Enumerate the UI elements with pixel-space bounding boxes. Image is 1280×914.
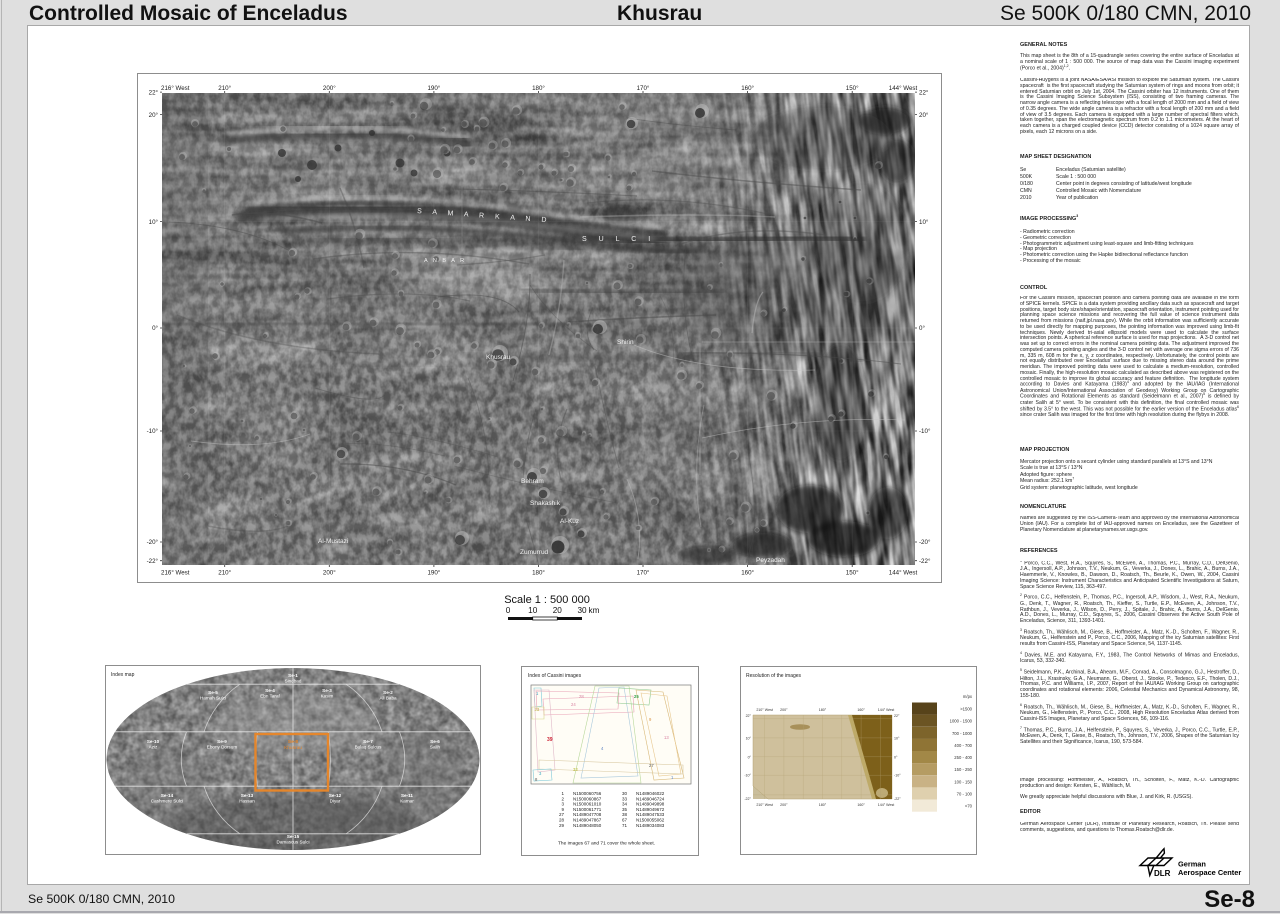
svg-text:Se-4: Se-4: [265, 688, 275, 693]
svg-text:39: 39: [547, 737, 553, 743]
svg-text:13: 13: [664, 735, 669, 740]
svg-text:200°: 200°: [323, 85, 336, 92]
svg-text:160°: 160°: [857, 803, 865, 807]
svg-text:100 - 150: 100 - 150: [954, 779, 972, 784]
svg-text:190°: 190°: [427, 570, 440, 577]
svg-text:Aziz: Aziz: [149, 745, 158, 750]
svg-text:Se-13: Se-13: [241, 793, 254, 798]
svg-text:-22°: -22°: [147, 558, 159, 565]
svg-text:33: 33: [573, 767, 578, 772]
svg-text:38: 38: [622, 812, 628, 817]
svg-text:The images 67 and 71 cover the: The images 67 and 71 cover the whole she…: [558, 841, 655, 847]
svg-text:Salih: Salih: [430, 745, 441, 750]
svg-text:30: 30: [577, 606, 587, 615]
svg-text:Se-2: Se-2: [383, 690, 393, 695]
svg-text:0°: 0°: [748, 755, 752, 759]
svg-text:DLR: DLR: [1154, 869, 1171, 878]
svg-text:180°: 180°: [819, 803, 827, 807]
svg-text:150 - 250: 150 - 250: [954, 767, 972, 772]
svg-text:N1489046724: N1489046724: [636, 796, 665, 801]
svg-text:216° West: 216° West: [161, 570, 190, 577]
svg-text:Se-12: Se-12: [329, 793, 342, 798]
svg-text:200°: 200°: [780, 708, 788, 712]
svg-text:180°: 180°: [532, 85, 545, 92]
svg-text:Cashmere Sulci: Cashmere Sulci: [151, 799, 183, 804]
svg-text:N1489047867: N1489047867: [573, 818, 602, 823]
svg-text:Aerospace Center: Aerospace Center: [1178, 868, 1241, 877]
svg-text:250 - 400: 250 - 400: [954, 755, 972, 760]
svg-text:23: 23: [535, 707, 540, 712]
svg-text:-10°: -10°: [744, 774, 751, 778]
svg-text:10: 10: [528, 606, 538, 615]
svg-text:0°: 0°: [919, 325, 925, 332]
svg-text:210°: 210°: [218, 85, 231, 92]
svg-text:33: 33: [622, 796, 628, 801]
svg-text:0°: 0°: [894, 755, 898, 759]
svg-text:29: 29: [559, 823, 565, 828]
svg-text:27: 27: [559, 812, 565, 817]
svg-text:30: 30: [622, 791, 628, 796]
svg-text:0°: 0°: [152, 325, 158, 332]
svg-text:150°: 150°: [846, 570, 859, 577]
svg-text:10°: 10°: [746, 736, 752, 740]
svg-text:Index map: Index map: [111, 672, 135, 678]
svg-text:160°: 160°: [741, 570, 754, 577]
svg-text:<70: <70: [965, 804, 973, 809]
svg-text:-22°: -22°: [744, 797, 751, 801]
svg-text:20°: 20°: [149, 112, 159, 119]
svg-text:35: 35: [622, 807, 628, 812]
svg-text:-10°: -10°: [894, 774, 901, 778]
svg-text:-20°: -20°: [919, 539, 931, 546]
svg-text:210° West: 210° West: [756, 708, 773, 712]
svg-text:Ali Baba: Ali Baba: [379, 696, 397, 701]
svg-text:Ebony Dorsum: Ebony Dorsum: [207, 745, 238, 750]
svg-text:144° West: 144° West: [889, 85, 918, 92]
svg-text:N1489047708: N1489047708: [573, 812, 602, 817]
svg-text:N1489047533: N1489047533: [636, 812, 665, 817]
svg-text:N1489048050: N1489048050: [573, 823, 602, 828]
svg-text:22°: 22°: [919, 90, 929, 97]
svg-text:Damascus Sulci: Damascus Sulci: [277, 840, 310, 845]
svg-text:10°: 10°: [149, 219, 159, 226]
svg-text:Se-8: Se-8: [288, 739, 298, 745]
svg-text:20: 20: [553, 606, 563, 615]
svg-text:180°: 180°: [532, 570, 545, 577]
svg-text:Resolution of the images: Resolution of the images: [746, 673, 802, 679]
svg-text:N1500061010: N1500061010: [573, 802, 602, 807]
svg-text:67: 67: [622, 818, 628, 823]
svg-text:Sindbad: Sindbad: [285, 679, 302, 684]
svg-text:700 - 1000: 700 - 1000: [952, 731, 973, 736]
svg-text:150°: 150°: [846, 85, 859, 92]
svg-text:Se-10: Se-10: [147, 739, 160, 744]
svg-text:Bulaq Sulcus: Bulaq Sulcus: [355, 745, 383, 750]
svg-text:28: 28: [579, 694, 584, 699]
svg-text:N1489049898: N1489049898: [636, 802, 665, 807]
svg-text:Se-14: Se-14: [161, 793, 174, 798]
svg-text:10°: 10°: [894, 736, 900, 740]
svg-text:-22°: -22°: [894, 797, 901, 801]
svg-text:200°: 200°: [780, 803, 788, 807]
svg-text:0: 0: [506, 606, 511, 615]
svg-text:m/px: m/px: [963, 694, 973, 699]
svg-text:-10°: -10°: [919, 428, 931, 435]
svg-text:N1489046022: N1489046022: [636, 791, 665, 796]
svg-text:Se-9: Se-9: [217, 739, 227, 744]
svg-text:Kamar: Kamar: [400, 799, 414, 804]
svg-text:N1489049672: N1489049672: [636, 807, 665, 812]
svg-text:1000 - 1500: 1000 - 1500: [950, 719, 973, 724]
svg-text:144° West: 144° West: [889, 570, 918, 577]
svg-text:20°: 20°: [919, 112, 929, 119]
svg-text:-20°: -20°: [147, 539, 159, 546]
svg-text:170°: 170°: [637, 85, 650, 92]
svg-text:-10°: -10°: [147, 428, 159, 435]
svg-text:km: km: [589, 606, 600, 615]
svg-text:70 - 100: 70 - 100: [957, 791, 973, 796]
svg-text:400 - 700: 400 - 700: [954, 743, 972, 748]
svg-text:Index of Cassini images: Index of Cassini images: [528, 673, 582, 679]
svg-text:180°: 180°: [819, 708, 827, 712]
svg-text:210°: 210°: [218, 570, 231, 577]
svg-text:Ebn Taraf: Ebn Taraf: [260, 694, 280, 699]
svg-text:Se-3: Se-3: [322, 688, 332, 693]
svg-text:Se-1: Se-1: [288, 673, 298, 678]
svg-text:10°: 10°: [919, 219, 929, 226]
svg-text:24: 24: [571, 702, 576, 707]
svg-text:34: 34: [622, 802, 628, 807]
svg-text:144° West: 144° West: [878, 803, 895, 807]
svg-text:Se-15: Se-15: [287, 834, 300, 839]
svg-text:Se-6: Se-6: [430, 739, 440, 744]
svg-text:Khusrau: Khusrau: [284, 745, 302, 751]
svg-text:28: 28: [559, 818, 565, 823]
svg-text:N1489034083: N1489034083: [636, 823, 665, 828]
svg-text:190°: 190°: [427, 85, 440, 92]
svg-text:N1500055062: N1500055062: [636, 818, 665, 823]
svg-text:Kasim: Kasim: [321, 694, 334, 699]
svg-text:Se-5: Se-5: [208, 690, 218, 695]
svg-text:22°: 22°: [894, 714, 900, 718]
svg-text:200°: 200°: [323, 570, 336, 577]
svg-text:170°: 170°: [637, 570, 650, 577]
svg-text:160°: 160°: [741, 85, 754, 92]
svg-text:22°: 22°: [149, 90, 159, 97]
svg-text:N1500060867: N1500060867: [573, 796, 602, 801]
svg-text:160°: 160°: [857, 708, 865, 712]
svg-text:216° West: 216° West: [161, 85, 190, 92]
svg-text:210° West: 210° West: [756, 803, 773, 807]
svg-text:144° West: 144° West: [878, 708, 895, 712]
svg-text:22°: 22°: [746, 714, 752, 718]
svg-text:Se-11: Se-11: [401, 793, 413, 798]
svg-text:Hassan: Hassan: [239, 799, 255, 804]
svg-text:71: 71: [622, 823, 628, 828]
svg-text:Diyar: Diyar: [330, 799, 341, 804]
svg-text:Se-7: Se-7: [363, 739, 373, 744]
svg-text:>1500: >1500: [960, 707, 972, 712]
svg-text:27: 27: [649, 763, 654, 768]
svg-text:25: 25: [634, 694, 639, 699]
svg-text:N1500060756: N1500060756: [573, 791, 602, 796]
svg-text:N1500061771: N1500061771: [573, 807, 602, 812]
svg-text:Hamah Sulci: Hamah Sulci: [200, 696, 226, 701]
svg-text:-22°: -22°: [919, 558, 931, 565]
